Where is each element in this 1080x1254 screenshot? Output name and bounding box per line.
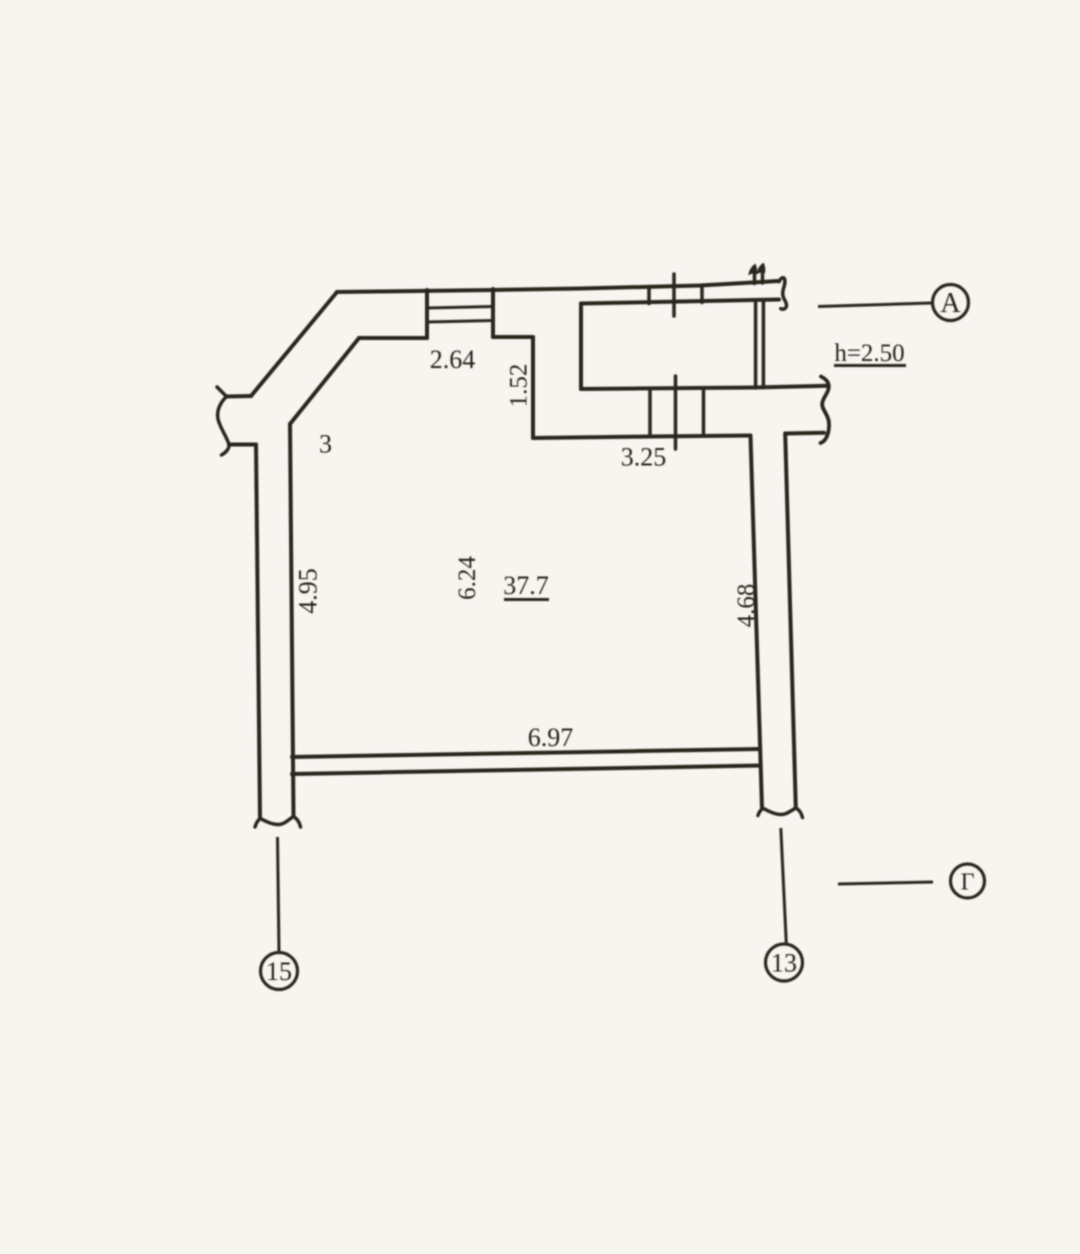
svg-text:А: А <box>940 288 961 319</box>
svg-text:3.25: 3.25 <box>621 443 667 472</box>
svg-text:6.97: 6.97 <box>528 723 574 752</box>
svg-text:3: 3 <box>319 430 332 459</box>
svg-text:4.95: 4.95 <box>294 568 323 614</box>
svg-text:h=2.50: h=2.50 <box>834 340 904 367</box>
svg-text:6.24: 6.24 <box>454 556 481 600</box>
svg-text:Г: Г <box>961 870 975 896</box>
svg-text:2.64: 2.64 <box>430 345 476 374</box>
svg-text:13: 13 <box>771 949 797 978</box>
svg-text:4.68: 4.68 <box>733 584 760 628</box>
svg-text:37.7: 37.7 <box>503 571 549 600</box>
svg-text:1.52: 1.52 <box>506 364 533 408</box>
svg-text:15: 15 <box>266 957 292 986</box>
